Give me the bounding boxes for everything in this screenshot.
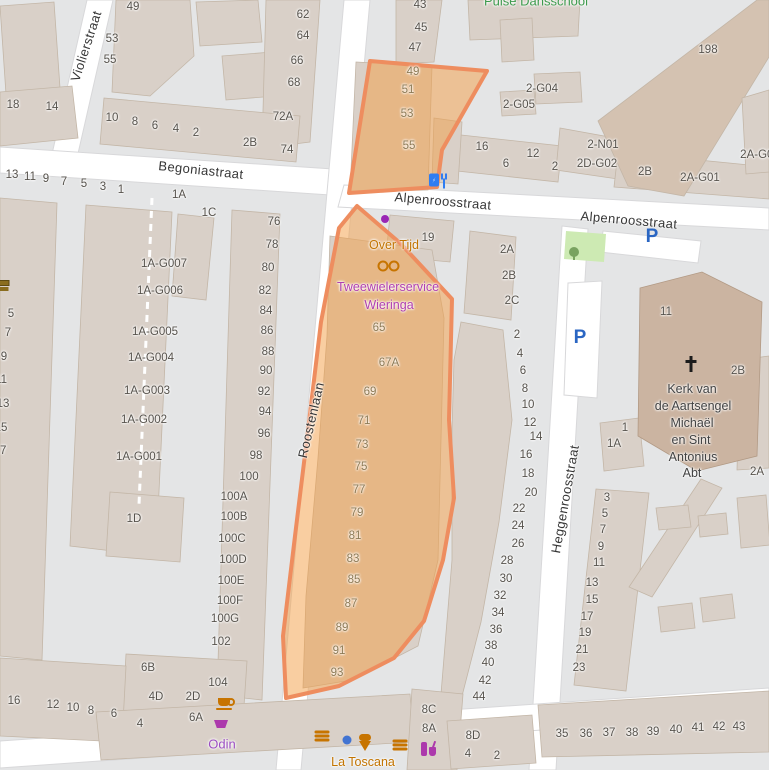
house-number: 88 xyxy=(262,346,275,358)
house-number: 75 xyxy=(355,461,368,473)
house-number: 1A-G002 xyxy=(121,414,167,426)
house-number: 100G xyxy=(211,613,239,625)
house-number: 42 xyxy=(479,675,492,687)
house-number: 36 xyxy=(490,624,503,636)
house-number: 11 xyxy=(24,171,36,183)
house-number: 2 xyxy=(552,161,558,173)
house-number: 2 xyxy=(514,329,520,341)
house-number: 20 xyxy=(525,487,538,499)
house-number: 93 xyxy=(331,667,344,679)
house-number: 2B xyxy=(502,270,516,282)
house-number: 100A xyxy=(221,491,248,503)
poi-label-la-toscana: La Toscana xyxy=(331,755,395,769)
house-number: 19 xyxy=(579,627,592,639)
house-number: 2B xyxy=(638,166,652,178)
house-number: 40 xyxy=(670,724,683,736)
house-number: 49 xyxy=(127,1,140,13)
street-label-alpenroosstraat: Alpenroosstraat xyxy=(394,189,492,212)
house-number: 74 xyxy=(281,144,294,156)
house-number: 62 xyxy=(297,9,310,21)
house-number: 5 xyxy=(602,508,608,520)
house-number: 34 xyxy=(492,607,505,619)
house-number: 35 xyxy=(556,728,569,740)
house-number: 13 xyxy=(6,169,19,181)
house-number: 1 xyxy=(622,422,628,434)
house-number: 39 xyxy=(647,726,660,738)
house-number: 37 xyxy=(603,727,616,739)
house-number: 77 xyxy=(353,484,366,496)
icecream-icon xyxy=(359,741,371,751)
house-number: 83 xyxy=(347,553,360,565)
house-number: 16 xyxy=(8,695,21,707)
house-number: 9 xyxy=(1,351,7,363)
street-label-violierstraat: Violierstraat xyxy=(67,9,104,84)
house-number: 2C xyxy=(505,295,520,307)
house-number: 49 xyxy=(407,66,420,78)
house-number: 16 xyxy=(520,449,533,461)
house-number: 38 xyxy=(626,727,639,739)
house-number: 94 xyxy=(259,406,272,418)
poi-label-tweewielerservice: Wieringa xyxy=(364,298,413,312)
street-label-heggenroosstraat: Heggenroosstraat xyxy=(548,444,582,555)
house-number: 79 xyxy=(351,507,364,519)
house-number: 26 xyxy=(512,538,525,550)
house-number: 55 xyxy=(403,140,416,152)
house-number: 6 xyxy=(503,158,509,170)
house-number: 91 xyxy=(333,645,346,657)
house-number: 1A xyxy=(607,438,621,450)
house-number: 2B xyxy=(731,365,745,377)
ev-icon xyxy=(429,174,439,187)
house-number: 68 xyxy=(288,77,301,89)
house-number: 72A xyxy=(273,111,293,123)
house-number: 17 xyxy=(581,611,594,623)
house-number: 98 xyxy=(250,450,263,462)
drinks-icon xyxy=(421,742,427,756)
house-number: 2A-G01 xyxy=(680,172,720,184)
church-label: de Aartsengel xyxy=(655,399,731,413)
house-number: 5 xyxy=(81,178,87,190)
house-number: 22 xyxy=(513,503,526,515)
house-number: 2D-G02 xyxy=(577,158,617,170)
church-label: en Sint xyxy=(672,433,711,447)
house-number: 3 xyxy=(100,181,106,193)
house-number: 6 xyxy=(111,708,117,720)
basket-icon xyxy=(214,720,228,728)
house-number: 2-G04 xyxy=(526,83,558,95)
house-number: 12 xyxy=(527,148,540,160)
house-number: 1A-G006 xyxy=(137,285,183,297)
house-number: 14 xyxy=(530,431,543,443)
house-number: 14 xyxy=(46,101,59,113)
house-number: 6A xyxy=(189,712,203,724)
house-number: 8D xyxy=(466,730,481,742)
house-number: 8A xyxy=(422,723,436,735)
house-number: 32 xyxy=(494,590,507,602)
bike-icon xyxy=(378,261,389,272)
house-number: 2B xyxy=(243,137,257,149)
house-number: 42 xyxy=(713,721,726,733)
house-number: 6 xyxy=(152,120,158,132)
house-number: 2A-G02 xyxy=(740,149,769,161)
tree-icon xyxy=(569,247,579,257)
church-label: Abt xyxy=(683,466,702,480)
house-number: 4 xyxy=(517,348,523,360)
house-number: 1A-G005 xyxy=(132,326,178,338)
house-number: 198 xyxy=(698,44,717,56)
house-number: 2 xyxy=(494,750,500,762)
house-number: 69 xyxy=(364,386,377,398)
house-number: 86 xyxy=(261,325,274,337)
house-number: 5 xyxy=(8,308,14,320)
house-number: 1 xyxy=(118,184,124,196)
house-number: 21 xyxy=(576,644,589,656)
house-number: 1A-G003 xyxy=(124,385,170,397)
house-number: 2A xyxy=(500,244,514,256)
house-number: 53 xyxy=(106,33,119,45)
house-number: 13 xyxy=(586,577,599,589)
house-number: 1D xyxy=(127,513,142,525)
house-number: 36 xyxy=(580,728,593,740)
church-label: Antonius xyxy=(669,450,718,464)
house-number: 82 xyxy=(259,285,272,297)
house-number: 11 xyxy=(593,557,605,569)
burger-icon xyxy=(393,740,408,743)
house-number: 43 xyxy=(733,721,746,733)
house-number: 102 xyxy=(211,636,230,648)
cross-icon xyxy=(690,356,693,372)
house-number: 3 xyxy=(604,492,610,504)
house-number: 8C xyxy=(422,704,437,716)
house-number: 90 xyxy=(260,365,273,377)
house-number: 15 xyxy=(0,422,7,434)
house-number: 18 xyxy=(7,99,20,111)
street-label-begoniastraat: Begoniastraat xyxy=(158,158,245,182)
house-number: 8 xyxy=(132,116,138,128)
house-number: 16 xyxy=(476,141,489,153)
house-number: 1A-G004 xyxy=(128,352,174,364)
house-number: 4 xyxy=(465,748,471,760)
poi-label-tweewielerservice: Tweewielerservice xyxy=(337,280,439,294)
house-number: 8 xyxy=(522,383,528,395)
house-number: 100E xyxy=(218,575,245,587)
house-number: 78 xyxy=(266,239,279,251)
house-number: 2 xyxy=(193,127,199,139)
house-number: 7 xyxy=(5,327,11,339)
house-number: 100F xyxy=(217,595,243,607)
parking-icon: P xyxy=(646,226,659,248)
house-number: 47 xyxy=(409,42,422,54)
poi-label-over-tijd: Over Tijd xyxy=(369,238,419,252)
house-number: 13 xyxy=(0,398,9,410)
house-number: 28 xyxy=(501,555,514,567)
house-number: 92 xyxy=(258,386,271,398)
house-number: 17 xyxy=(0,445,6,457)
house-number: 51 xyxy=(402,84,415,96)
house-number: 89 xyxy=(336,622,349,634)
label-layer: ViolierstraatBegoniastraatAlpenroosstraa… xyxy=(0,0,769,770)
house-number: 2D xyxy=(186,691,201,703)
house-number: 80 xyxy=(262,262,275,274)
house-number: 44 xyxy=(473,691,486,703)
house-number: 67A xyxy=(379,357,399,369)
house-number: 8 xyxy=(88,705,94,717)
house-number: 2A xyxy=(750,466,764,478)
house-number: 66 xyxy=(291,55,304,67)
house-number: 87 xyxy=(345,598,358,610)
map-canvas[interactable]: ViolierstraatBegoniastraatAlpenroosstraa… xyxy=(0,0,769,770)
church-label: Michaël xyxy=(670,416,713,430)
house-number: 10 xyxy=(67,702,80,714)
house-number: 41 xyxy=(692,722,705,734)
house-number: 12 xyxy=(47,699,60,711)
house-number: 81 xyxy=(349,530,362,542)
house-number: 12 xyxy=(524,417,537,429)
house-number: 10 xyxy=(522,399,535,411)
house-number: 53 xyxy=(401,108,414,120)
house-number: 65 xyxy=(373,322,386,334)
house-number: 100C xyxy=(218,533,246,545)
parking-icon: P xyxy=(574,327,587,349)
coffee-icon xyxy=(218,698,230,706)
dot-purple-icon xyxy=(381,215,389,223)
house-number: 2-N01 xyxy=(587,139,618,151)
church-label: Kerk van xyxy=(667,382,716,396)
poi-label-odin: Odin xyxy=(208,737,235,752)
house-number: 64 xyxy=(297,30,310,42)
burger-icon xyxy=(315,731,330,734)
house-number: 85 xyxy=(348,574,361,586)
house-number: 6B xyxy=(141,662,155,674)
house-number: 100D xyxy=(219,554,247,566)
house-number: 24 xyxy=(512,520,525,532)
house-number: 11 xyxy=(660,306,672,318)
house-number: 73 xyxy=(356,439,369,451)
house-number: 4 xyxy=(173,123,179,135)
house-number: 4D xyxy=(149,691,164,703)
house-number: 96 xyxy=(258,428,271,440)
house-number: 6 xyxy=(520,365,526,377)
house-number: 7 xyxy=(61,176,67,188)
house-number: 15 xyxy=(586,594,599,606)
books-icon xyxy=(0,281,9,285)
house-number: 2-G05 xyxy=(503,99,535,111)
house-number: 45 xyxy=(415,22,428,34)
house-number: 1A-G001 xyxy=(116,451,162,463)
house-number: 84 xyxy=(260,305,273,317)
house-number: 11 xyxy=(0,374,7,386)
house-number: 7 xyxy=(600,524,606,536)
street-label-alpenroosstraat: Alpenroosstraat xyxy=(580,208,678,231)
house-number: 1A xyxy=(172,189,186,201)
house-number: 100B xyxy=(221,511,248,523)
house-number: 104 xyxy=(208,677,227,689)
house-number: 40 xyxy=(482,657,495,669)
house-number: 10 xyxy=(106,112,119,124)
house-number: 9 xyxy=(43,173,49,185)
house-number: 4 xyxy=(137,718,143,730)
house-number: 100 xyxy=(239,471,258,483)
house-number: 76 xyxy=(268,216,281,228)
house-number: 55 xyxy=(104,54,117,66)
house-number: 1C xyxy=(202,207,217,219)
dot-blue-icon xyxy=(343,736,352,745)
house-number: 1A-G007 xyxy=(141,258,187,270)
house-number: 9 xyxy=(598,541,604,553)
house-number: 23 xyxy=(573,662,586,674)
house-number: 38 xyxy=(485,640,498,652)
poi-label-pulse-dansschool: Pulse Dansschool xyxy=(484,0,588,9)
house-number: 71 xyxy=(358,415,371,427)
house-number: 19 xyxy=(422,232,435,244)
street-label-roostenlaan: Roostenlaan xyxy=(295,381,327,460)
house-number: 18 xyxy=(522,468,535,480)
house-number: 43 xyxy=(414,0,427,11)
house-number: 30 xyxy=(500,573,513,585)
